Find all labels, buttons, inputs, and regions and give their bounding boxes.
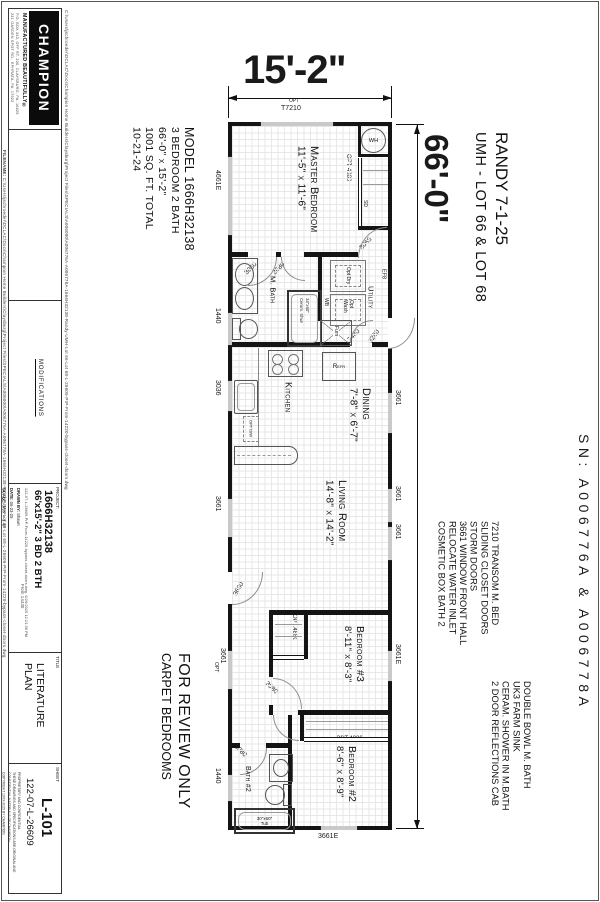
sheet-code: 122-07-L-26609 [24,778,35,846]
room-dims: 7'-8" x 6'-7" [346,388,359,442]
modifications-label: MODIFICATIONS [37,359,43,417]
drawing-sheet: FILENAME: C:\Users\jschroeder\DCLAC\Docs… [0,0,600,902]
lot-note: UMH - LOT 66 & LOT 68 [470,132,490,302]
shower-size-label: 34"x60" [304,298,310,323]
customer-block: RANDY 7-1-25 UMH - LOT 66 & LOT 68 [470,132,513,302]
wall [304,615,308,659]
drawn-by-field: DRAWN BY: Shawn [15,488,22,528]
model-line: 10-21-24 [130,127,143,251]
smoke-detector-label: SD [362,200,367,207]
dim-arrow-left [228,95,237,101]
title-section: TITLE LITERATURE PLAN [9,653,61,764]
window-label: T7210 [281,105,301,112]
room-name: Master Bedroom [306,146,320,232]
window [388,392,392,434]
window [260,122,334,126]
sheet-label: SHEET [55,767,60,782]
width-dimension: 15'-2" [243,50,346,90]
note: 3661 WINDOW FRONT HALL [457,521,468,645]
door-swing [358,227,387,258]
date-value: 06-23-25 [9,502,14,519]
closet-shelf [275,624,302,625]
project-file: 122-07-L-26609-PrP-From-14220-bypass-clo… [23,488,28,637]
toilet-bowl [239,319,258,339]
window-label: 3661 [219,648,226,664]
sheet-number: L-101 [38,798,55,837]
furnace: Furn [320,320,352,346]
sliding-door [273,655,304,660]
serial-number: SN: A006776A & A006778A [577,434,591,710]
dim-arrow-top [414,125,420,134]
project-desc: 66'x15'-2" 3 BD 2 BTH [31,490,41,588]
filename-strip: FILENAME: C:\Users\jschroeder\DCLAC\Docs… [1,150,7,658]
wall [269,615,273,677]
window-label: 3661 [394,486,401,502]
wb-label: WB [323,298,328,306]
date-field: DATE: 06-23-25 [8,488,15,528]
window-label: 1440 [214,768,221,784]
refrigerator-label: Refr [333,364,345,370]
notes-block-a: 7210 TRANSOM M. BED SLIDING CLOSET DOORS… [436,521,500,645]
scale-value: 3/16" = 1'-0" [2,505,7,528]
wall [269,610,388,615]
closet-shelf [363,184,388,185]
model-line: 3 BEDROOM 2 BATH [168,127,181,251]
wall [304,252,358,257]
model-number: MODEL 1666H32138 [181,127,196,251]
model-block: MODEL 1666H32138 3 BEDROOM 2 BATH 66'-0"… [130,127,196,251]
room-name: Living Room [334,480,348,546]
dim-ext-right [391,86,392,118]
filename-path: C:\Users\jschroeder\DCLAC\Docs\Champion … [2,178,7,658]
title-text: LITERATURE PLAN [22,663,46,728]
wall [266,743,290,748]
drawn-by-label: DRAWN BY: [16,488,21,512]
door-swing [388,318,415,349]
room-dims: 8'-11" x 8'-3" [341,626,353,683]
note: SLIDING CLOSET DOORS [479,521,490,645]
window-label-opt: OPT [289,99,299,104]
drawing-fields: DRAWN BY: Shawn DATE: 06-23-25 SCALE: 3/… [1,488,22,528]
proprietary-line-1: PROPRIETARY AND CONFIDENTIAL [16,772,21,893]
room-label-bedroom-3: Bedroom #3 8'-11" x 8'-3" [341,626,366,683]
window [228,650,232,690]
closet-shelf [363,170,388,171]
room-dims: 8'-6" x 8'-9" [333,746,345,802]
kitchen-peninsula [234,446,298,465]
drawn-by-value: Shawn [16,513,21,526]
wall [232,252,248,257]
wall [298,710,388,715]
review-block: FOR REVIEW ONLY CARPET BEDROOMS [158,653,192,809]
water-heater: WH [361,128,386,153]
room-label-master-bedroom: Master Bedroom 11'-5" x 11'-6" [294,146,320,232]
room-label-kitchen: Kitchen [282,382,293,412]
empty-section [9,130,61,301]
closet-shelf [306,721,388,722]
project-number: 1666H32138 [42,490,54,588]
room-name: Bedroom #2 [345,746,358,802]
note: 2 DOOR REFLECTIONS CAB [489,681,500,810]
wall [232,743,240,748]
modifications-section: MODIFICATIONS [9,301,61,484]
filename-label: FILENAME: [2,150,7,176]
room-label-bedroom-2: Bedroom #2 8'-6" x 8'-9" [333,746,358,802]
dryer-label: Opt Dry [345,267,351,284]
model-line: 66'-0" x 15'-2" [155,127,168,251]
window-label: 3036 [214,380,221,396]
exhaust-fan-label: EF8 [380,269,386,279]
note: RELOCATE WATER INLET [447,521,458,645]
water-heater-label: WH [369,138,378,144]
window [320,826,358,830]
note: UK3 FARM SINK [511,681,522,810]
review-note-2: CARPET BEDROOMS [158,653,173,809]
review-note-1: FOR REVIEW ONLY [173,653,192,809]
shower-type-label: Ceram. Shwr [298,298,304,323]
furnace-label: Furn [333,326,339,336]
sink-basin [235,263,254,286]
tub-label: Tub [261,821,269,826]
floor-plan: WH SD 34"x60" Ceram. Shwr Opt Dry Opt Wa… [228,122,392,830]
room-dims: 14'-8" x 14'-2" [322,480,335,546]
door-swing [273,678,302,709]
closet-shelf [306,729,388,730]
kitchen-sink [234,380,258,414]
length-dim-line [417,125,418,829]
notes-block-b: DOUBLE BOWL M. BATH UK3 FARM SINK CERAM.… [489,681,532,810]
sheet-section: SHEET L-101 122-07-L-26609 PROPRIETARY A… [9,764,61,893]
dishwasher-label: OPT D/W [249,420,254,437]
dishwasher: OPT D/W [243,416,259,442]
window-label: 3661E [318,833,338,840]
room-label-m-bath: M. Bath [268,276,277,303]
washer-label: Opt Wash [342,300,354,320]
room-dims: 11'-5" x 11'-6" [294,146,307,232]
tub: 30"x60" Tub [234,808,295,834]
room-label-living-room: Living Room 14'-8" x 14'-2" [322,480,348,546]
note: 7210 TRANSOM M. BED [489,521,500,645]
title-line-2: PLAN [22,663,34,728]
door-swing [273,715,299,741]
note: STORM DOORS [468,521,479,645]
project-text: 1666H32138 66'x15'-2" 3 BD 2 BTH [31,490,54,588]
dim-ext-top [396,124,424,125]
window-label: 1440 [214,308,221,324]
champion-logo-text: CHAMPION [36,24,52,112]
address-line-2: 231 GARDEN SPOT RD., EPHRATA, PA. 17522 [9,13,14,102]
from-note: From 14430 [20,584,25,609]
champion-logo: CHAMPION [29,11,59,125]
dryer: Opt Dry [330,260,366,292]
title-line-1: LITERATURE [34,663,46,728]
sliding-door [358,158,362,226]
wall [358,154,388,157]
length-dimension: 66'-0" [420,134,453,224]
room-name: Dining [358,388,372,442]
window-label-opt: OPT [213,662,218,672]
window-label: 3661 [394,390,401,406]
scale-field: SCALE: 3/16" = 1'-0" [1,488,8,528]
proprietary-line-2: THESE DRAWINGS AND SPECIFICATIONS ARE OR… [6,772,16,893]
room-label-dining: Dining 7'-8" x 6'-7" [346,388,372,442]
door-swing [281,257,305,281]
dim-ext-left [228,86,229,118]
window [228,774,232,802]
proprietary-note: PROPRIETARY AND CONFIDENTIAL THESE DRAWI… [1,772,21,893]
room-name: Bedroom #3 [353,626,366,683]
window-label: 4661E [214,170,221,190]
project-section: PROJECT: 1666H32138 66'x15'-2" 3 BD 2 BT… [9,484,61,653]
dim-ext-bottom [396,828,424,829]
window [388,650,392,682]
shower: 34"x60" Ceram. Shwr [287,290,322,347]
toilet-bowl [265,785,285,805]
room-label-utility: Utility [366,286,375,309]
window [388,526,392,561]
model-line: 1001 SQ. FT. TOTAL [142,127,155,251]
title-block: CHAMPION MANUFACTURED BEAUTIFULLY® P.O. … [8,8,62,894]
project-label: PROJECT: [55,487,60,509]
title-label: TITLE [55,656,60,668]
date-label: DATE: [9,488,14,500]
note: DOUBLE BOWL M. BATH [521,681,532,810]
refrigerator: Refr [322,352,356,381]
room-label-bath-2: Bath #2 [242,766,251,792]
proprietary-line-3: COPYRIGHT 19XX-2025 BY CHAMPION [1,772,6,893]
window [228,156,232,236]
range [268,350,303,377]
wall [372,342,388,347]
note: COSMETIC BOX BATH 2 [436,521,447,645]
scale-label: SCALE: [2,488,7,504]
customer-date: RANDY 7-1-25 [489,132,512,302]
door-swing [232,572,263,605]
closet-shelf [275,636,302,637]
address-line-1: P.O. BOX 343, OFF RT. 220, CLAYSBURG, PA… [14,13,19,115]
window-label: 3661 [394,524,401,540]
filepath-strip: C:\Users\jschroeder\DCLAC\Docs\Champion … [63,10,69,490]
bath2-vanity [269,754,293,782]
width-dim-line [228,98,392,99]
window [228,498,232,538]
tagline: MANUFACTURED BEAUTIFULLY® [21,13,27,109]
window-label: 3661E [394,644,401,664]
sink-basin [235,287,254,310]
window-label: 3661 [214,496,221,512]
logo-section: CHAMPION MANUFACTURED BEAUTIFULLY® P.O. … [9,9,61,130]
note: CERAM. SHOWER IN M.BATH [500,681,511,810]
sliding-door [304,737,388,742]
window [388,488,392,523]
